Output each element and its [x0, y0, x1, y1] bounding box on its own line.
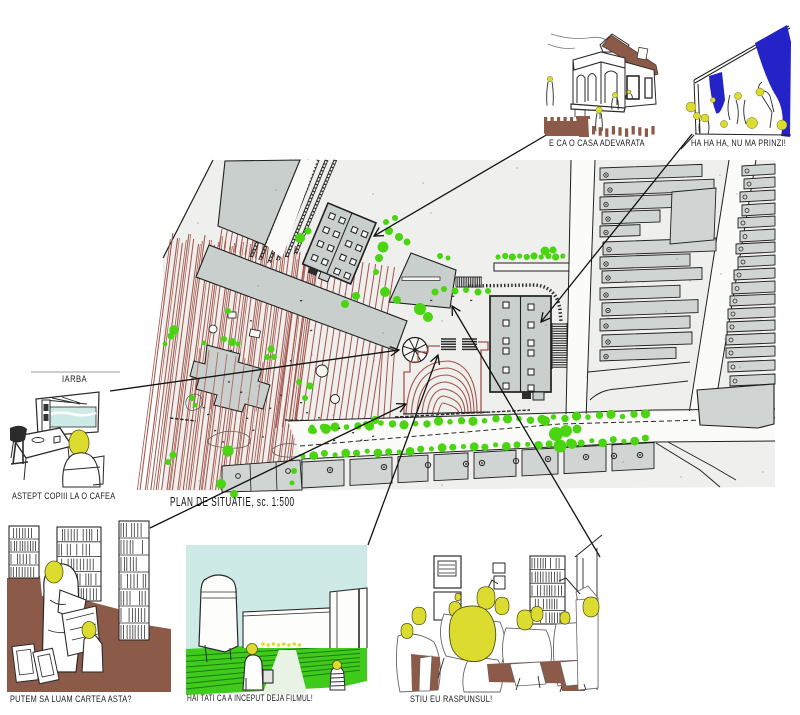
svg-text:IARBA: IARBA [62, 373, 87, 384]
svg-text:E CA O CASA ADEVARATA: E CA O CASA ADEVARATA [549, 137, 645, 148]
svg-text:HAI TATI CA A INCEPUT DEJA FIL: HAI TATI CA A INCEPUT DEJA FILMUL! [187, 693, 313, 703]
svg-text:PUTEM SA LUAM CARTEA ASTA?: PUTEM SA LUAM CARTEA ASTA? [10, 693, 132, 704]
svg-text:STIU EU RASPUNSUL!: STIU EU RASPUNSUL! [410, 693, 492, 704]
svg-text:PLAN DE SITUATIE, sc. 1:50: PLAN DE SITUATIE, sc. 1:500 [170, 495, 295, 509]
svg-text:HA HA HA, NU MA PRINZI!: HA HA HA, NU MA PRINZI! [691, 137, 786, 148]
svg-text:ASTEPT COPIII LA O CAFEA: ASTEPT COPIII LA O CAFEA [12, 490, 115, 501]
